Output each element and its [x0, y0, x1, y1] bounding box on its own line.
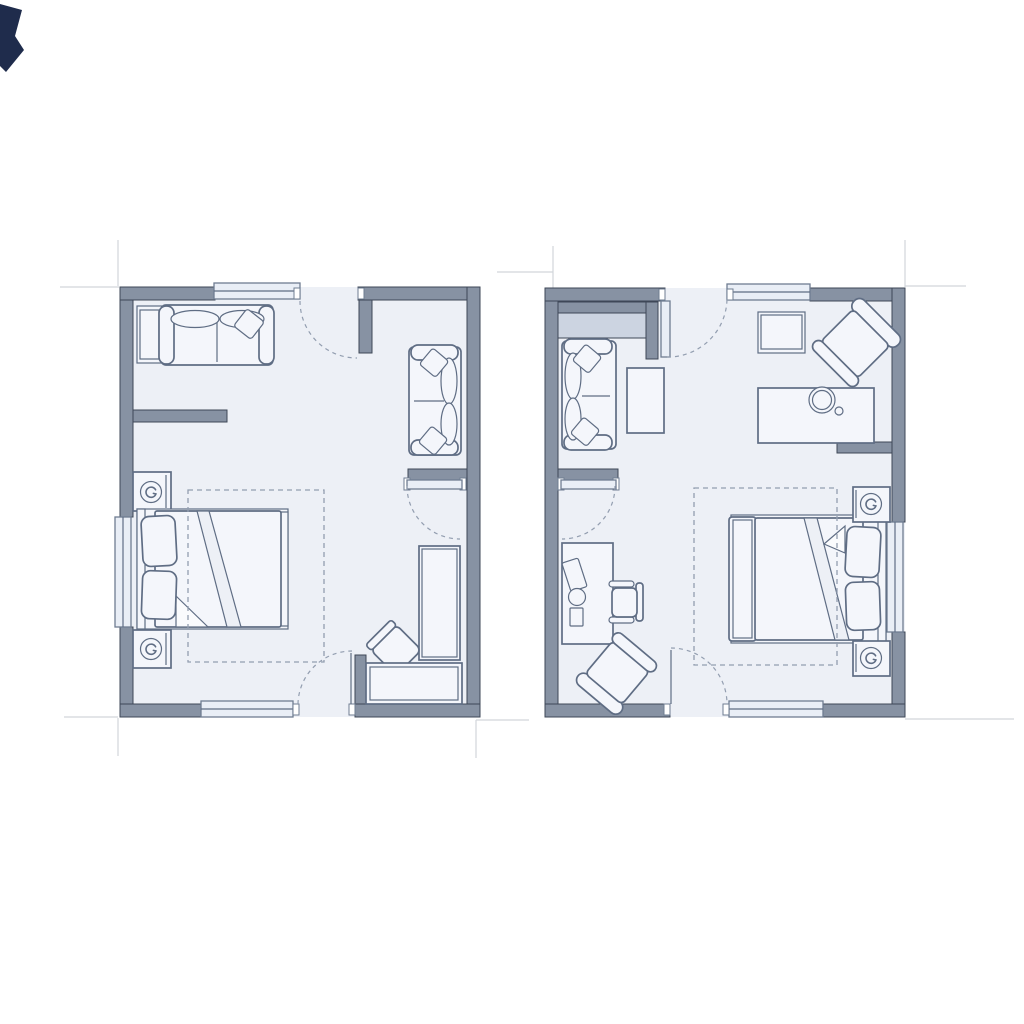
nightstand-with-lamp-lower [133, 630, 171, 668]
closet-stub-wall [558, 469, 618, 480]
pillow [845, 526, 882, 578]
desk-with-accessories [562, 543, 613, 644]
vanity-table-with-round-mirror [758, 387, 874, 443]
armrest [609, 581, 634, 587]
tall-desk-cabinet [419, 546, 460, 660]
desk-book [570, 608, 583, 626]
window [214, 283, 300, 299]
entry-partition-wall [359, 300, 372, 353]
corner-ink-artifact [0, 4, 24, 72]
two-seat-sofa [159, 305, 274, 365]
small-bowl [835, 407, 843, 415]
coffee-table [627, 368, 664, 433]
corner-stub-wall [355, 655, 366, 704]
low-counter [366, 663, 462, 704]
right-wall-loveseat [409, 345, 461, 455]
right-unit-plan [545, 284, 905, 717]
window [887, 522, 903, 632]
closet-stub-wall [408, 469, 467, 480]
window [201, 701, 293, 717]
pillow [141, 515, 178, 567]
left-unit-plan [115, 283, 480, 717]
entry-partition-wall [646, 302, 658, 359]
office-chair [609, 581, 643, 623]
foot-runner [729, 517, 756, 641]
window [727, 284, 810, 300]
closet-interior-wall [558, 302, 658, 313]
floor-plan-drawing [0, 0, 1024, 1024]
nightstand-with-lamp-upper [133, 472, 171, 511]
double-bed [729, 515, 886, 643]
side-table [758, 312, 805, 353]
desk-bowl [569, 589, 586, 606]
closet-shelf-band [558, 313, 646, 338]
double-bed [137, 509, 288, 629]
pillow [141, 570, 177, 619]
sofa-nook-stub-wall [133, 410, 227, 422]
armrest [609, 617, 634, 623]
two-seat-sofa [562, 339, 616, 450]
nightstand-with-lamp-lower [853, 641, 890, 676]
chair-seat [612, 588, 637, 617]
floor-plan-canvas [0, 0, 1024, 1024]
window [115, 517, 131, 627]
pillow [845, 581, 881, 630]
window [729, 701, 823, 717]
nightstand-with-lamp-upper [853, 487, 890, 522]
